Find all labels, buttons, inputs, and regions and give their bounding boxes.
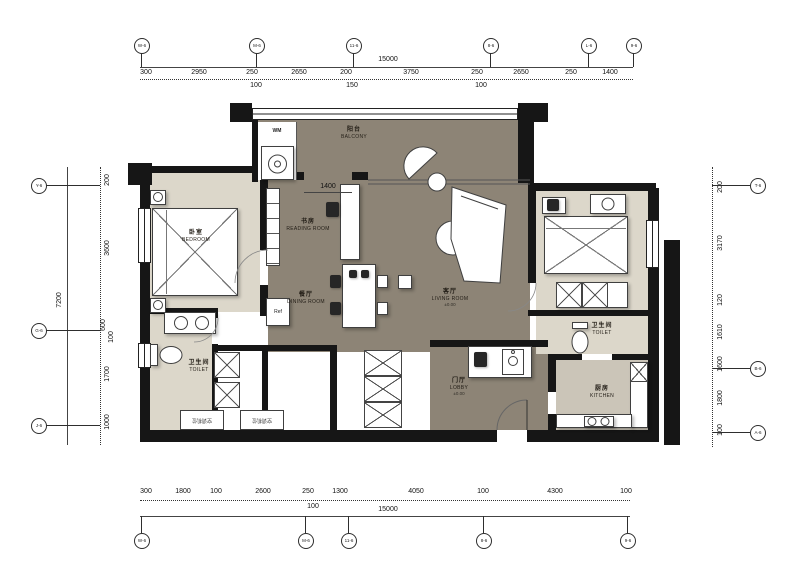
ac-label: 空调机位 — [252, 417, 272, 423]
axis-bubble: J-6 — [31, 418, 47, 434]
wall — [548, 354, 556, 392]
dim-label: 1610 — [717, 324, 725, 340]
dim-label: 120 — [717, 294, 725, 306]
axis-stem — [712, 432, 750, 433]
axis-stem — [633, 52, 634, 67]
bedroom-en: BEDROOM — [182, 237, 210, 243]
shaft-cell — [364, 402, 402, 428]
dim-label: 2650 — [513, 69, 529, 77]
axis-bubble: W-6 — [134, 38, 150, 54]
left-segment-dim-line — [100, 167, 101, 445]
axis-bubble: 8-6 — [476, 533, 492, 549]
axis-bubble: M-6 — [249, 38, 265, 54]
shaft-cell — [364, 376, 402, 402]
axis-stem — [348, 516, 349, 533]
dim-label: 100 — [717, 424, 725, 436]
axis-stem — [712, 368, 750, 369]
side-table — [398, 275, 412, 289]
reading-zh: 书房 — [286, 219, 329, 226]
top-total-dim-line — [140, 67, 633, 68]
dim-label: 300 — [140, 488, 152, 496]
dim-label: 300 — [140, 69, 152, 77]
axis-bubble: 9-6 — [620, 533, 636, 549]
cooktop — [584, 416, 614, 427]
wall — [230, 103, 252, 122]
dim-label: 3170 — [717, 235, 725, 251]
dim-label: 200 — [340, 69, 352, 77]
axis-bubble: G-6 — [31, 323, 47, 339]
wall — [140, 430, 497, 442]
bottom-total-dim: 15000 — [378, 506, 397, 514]
living-level: ±0.00 — [432, 302, 469, 307]
dining-en: DINING ROOM — [287, 299, 325, 305]
wall — [648, 188, 659, 220]
lobby-zh: 门厅 — [450, 378, 468, 385]
room-label-dining: 餐厅 DINING ROOM — [287, 292, 325, 305]
wall — [212, 345, 332, 351]
wall — [664, 240, 680, 445]
vanity — [164, 312, 216, 334]
dim-label: 1300 — [332, 488, 348, 496]
reading-en: READING ROOM — [286, 226, 329, 232]
room-label-bedroom: 卧室 BEDROOM — [182, 230, 210, 243]
dining-chair — [377, 275, 388, 288]
axis-bubble: 9-6 — [626, 38, 642, 54]
wardrobe-cell — [556, 282, 582, 308]
room-label-living: 客厅 LIVING ROOM ±0.00 — [432, 289, 469, 307]
kitchen-zh: 厨房 — [590, 386, 614, 393]
room-label-kitchen: 厨房 KITCHEN — [590, 386, 614, 399]
nightstand — [150, 190, 166, 205]
toilet-tank — [150, 344, 158, 366]
dim-label: 1800 — [717, 390, 725, 406]
bed — [152, 208, 238, 296]
axis-stem — [490, 52, 491, 67]
toilet-left-zh: 卫生间 — [188, 360, 209, 367]
dim-label: 2950 — [191, 69, 207, 77]
dim-label: 100 — [108, 331, 116, 343]
interior-dim: 1400 — [320, 183, 336, 191]
dining-chair — [330, 275, 341, 288]
bed2 — [544, 216, 628, 274]
room-label-lobby: 门厅 LOBBY ±0.00 — [450, 378, 468, 396]
axis-bubble: 11-6 — [346, 38, 362, 54]
left-total-dim-line — [67, 167, 68, 445]
tableware — [349, 270, 357, 278]
dresser — [590, 194, 626, 214]
axis-stem — [305, 516, 306, 533]
dim-label: 3750 — [403, 69, 419, 77]
wall — [518, 120, 534, 183]
dim-label: 4300 — [547, 488, 563, 496]
dim-label: 1700 — [104, 366, 112, 382]
window — [138, 208, 151, 263]
dim-sublabel: 100 — [250, 82, 262, 90]
bed-pillow-line — [166, 210, 167, 294]
dim-label: 4050 — [408, 488, 424, 496]
kitchen-fridge — [630, 362, 648, 382]
dim-sublabel: 100 — [307, 503, 319, 511]
axis-bubble: 11-6 — [341, 533, 357, 549]
dim-label: 100 — [210, 488, 222, 496]
nightstand — [150, 298, 166, 313]
axis-stem — [141, 516, 142, 533]
room-label-reading: 书房 READING ROOM — [286, 219, 329, 232]
dim-label: 250 — [302, 488, 314, 496]
dining-table — [342, 264, 376, 328]
wall — [330, 345, 337, 432]
dim-label: 200 — [104, 174, 112, 186]
dim-label: 1000 — [104, 414, 112, 430]
stove-island — [474, 352, 487, 367]
dim-sublabel: 150 — [346, 82, 358, 90]
wall — [530, 183, 656, 191]
axis-stem — [141, 52, 142, 67]
top-total-dim: 15000 — [378, 56, 397, 64]
hatch-cabinet — [214, 352, 240, 378]
axis-bubble: B-6 — [750, 361, 766, 377]
dining-zh: 餐厅 — [287, 292, 325, 299]
toilet2-tank — [572, 322, 588, 329]
dim-label: 100 — [477, 488, 489, 496]
axis-stem — [483, 516, 484, 533]
wall — [548, 414, 556, 442]
toilet-right-zh: 卫生间 — [591, 323, 612, 330]
fridge-label: Ref — [274, 309, 282, 315]
axis-bubble: M-6 — [298, 533, 314, 549]
wall — [528, 183, 536, 283]
axis-stem — [46, 185, 100, 186]
desk-chair — [326, 202, 339, 217]
axis-stem — [588, 52, 589, 67]
dim-label: 3600 — [104, 240, 112, 256]
bookshelf — [266, 188, 280, 266]
bedside-lamp — [547, 199, 559, 211]
dim-label: 250 — [471, 69, 483, 77]
axis-bubble: A-6 — [750, 425, 766, 441]
wall — [150, 166, 262, 173]
dim-sublabel: 100 — [475, 82, 487, 90]
axis-stem — [256, 52, 257, 67]
room-label-toilet-left: 卫生间 TOILET — [188, 360, 209, 373]
left-total-dim: 7200 — [56, 292, 64, 308]
wall — [140, 263, 150, 343]
top-segment-dim-line — [140, 79, 633, 80]
dim-label: 100 — [620, 488, 632, 496]
kitchen-en: KITCHEN — [590, 393, 614, 399]
dim-label: 2650 — [291, 69, 307, 77]
axis-bubble: T-6 — [750, 178, 766, 194]
axis-bubble: L-6 — [581, 38, 597, 54]
bottom-total-dim-line — [140, 516, 630, 517]
wardrobe-cell — [582, 282, 608, 308]
dining-chair — [377, 302, 388, 315]
wall — [528, 310, 656, 316]
washer-label: WM — [273, 128, 282, 134]
toilet-left-en: TOILET — [188, 367, 209, 373]
dim-label: 200 — [717, 181, 725, 193]
dim-label: 1600 — [717, 356, 725, 372]
axis-stem — [627, 516, 628, 533]
lobby-level: ±0.00 — [450, 391, 468, 396]
shaft-cell — [364, 350, 402, 376]
axis-stem — [712, 185, 750, 186]
axis-bubble: W-6 — [134, 533, 150, 549]
balcony-zh: 阳台 — [341, 127, 367, 134]
wall — [352, 172, 368, 180]
washing-machine — [261, 146, 294, 180]
living-zh: 客厅 — [432, 289, 469, 296]
desk — [340, 184, 360, 260]
wall — [612, 354, 656, 360]
ac-label: 空调机位 — [192, 417, 212, 423]
room-label-balcony: 阳台 BALCONY — [341, 127, 367, 140]
dim-label: 600 — [100, 319, 108, 331]
axis-bubble: 8-6 — [483, 38, 499, 54]
sink — [502, 349, 524, 375]
wall — [140, 166, 150, 208]
axis-stem — [46, 425, 100, 426]
bedroom-zh: 卧室 — [182, 230, 210, 237]
floor-plan-canvas: 15000 300 2950 250 2650 200 3750 250 265… — [0, 0, 799, 569]
interior-dim-line — [304, 192, 352, 193]
dim-label: 250 — [565, 69, 577, 77]
dining-chair — [330, 302, 341, 315]
balcony-en: BALCONY — [341, 134, 367, 140]
dim-label: 1800 — [175, 488, 191, 496]
tableware — [361, 270, 369, 278]
window — [252, 108, 518, 120]
toilet-right-en: TOILET — [591, 330, 612, 336]
axis-stem — [353, 52, 354, 67]
bottom-segment-dim-line — [140, 500, 630, 501]
room-label-toilet-right: 卫生间 TOILET — [591, 323, 612, 336]
living-dining-floor — [268, 180, 530, 352]
dim-label: 250 — [246, 69, 258, 77]
window — [646, 220, 659, 268]
hatch-cabinet — [214, 382, 240, 408]
dim-label: 2600 — [255, 488, 271, 496]
right-segment-dim-line — [712, 167, 713, 447]
bed2-pillow-line — [546, 228, 626, 229]
wall — [527, 430, 658, 442]
axis-stem — [46, 330, 100, 331]
dim-label: 1400 — [602, 69, 618, 77]
axis-bubble: Y-6 — [31, 178, 47, 194]
